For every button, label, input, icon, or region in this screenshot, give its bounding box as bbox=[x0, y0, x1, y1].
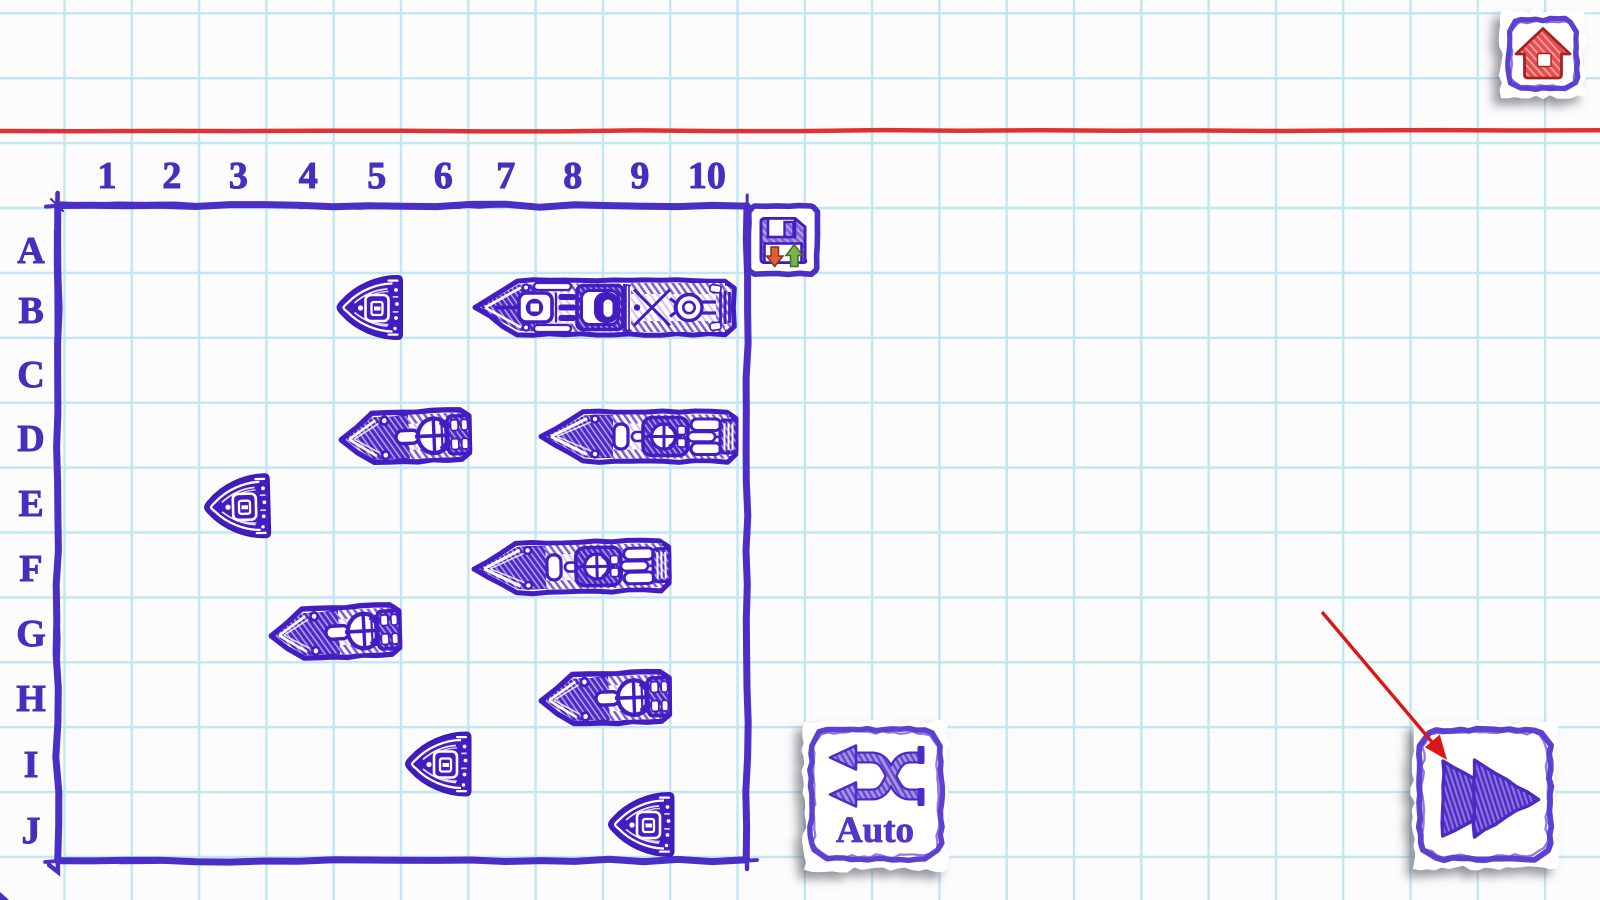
svg-text:I: I bbox=[24, 744, 39, 786]
svg-text:7: 7 bbox=[496, 155, 515, 197]
svg-text:10: 10 bbox=[688, 155, 726, 197]
svg-text:6: 6 bbox=[434, 155, 453, 197]
svg-text:Auto: Auto bbox=[836, 810, 914, 851]
svg-text:4: 4 bbox=[299, 155, 318, 197]
svg-text:D: D bbox=[17, 418, 44, 460]
svg-text:J: J bbox=[22, 810, 41, 852]
svg-text:G: G bbox=[16, 613, 46, 655]
svg-text:3: 3 bbox=[229, 155, 248, 197]
svg-text:1: 1 bbox=[98, 155, 117, 197]
svg-text:C: C bbox=[17, 354, 44, 396]
svg-text:F: F bbox=[19, 548, 42, 590]
svg-text:8: 8 bbox=[563, 155, 582, 197]
svg-text:2: 2 bbox=[162, 155, 181, 197]
svg-text:H: H bbox=[16, 678, 46, 720]
svg-text:5: 5 bbox=[367, 155, 386, 197]
svg-text:A: A bbox=[17, 230, 45, 272]
svg-text:9: 9 bbox=[630, 155, 649, 197]
svg-text:B: B bbox=[18, 290, 43, 332]
svg-text:E: E bbox=[18, 483, 43, 525]
